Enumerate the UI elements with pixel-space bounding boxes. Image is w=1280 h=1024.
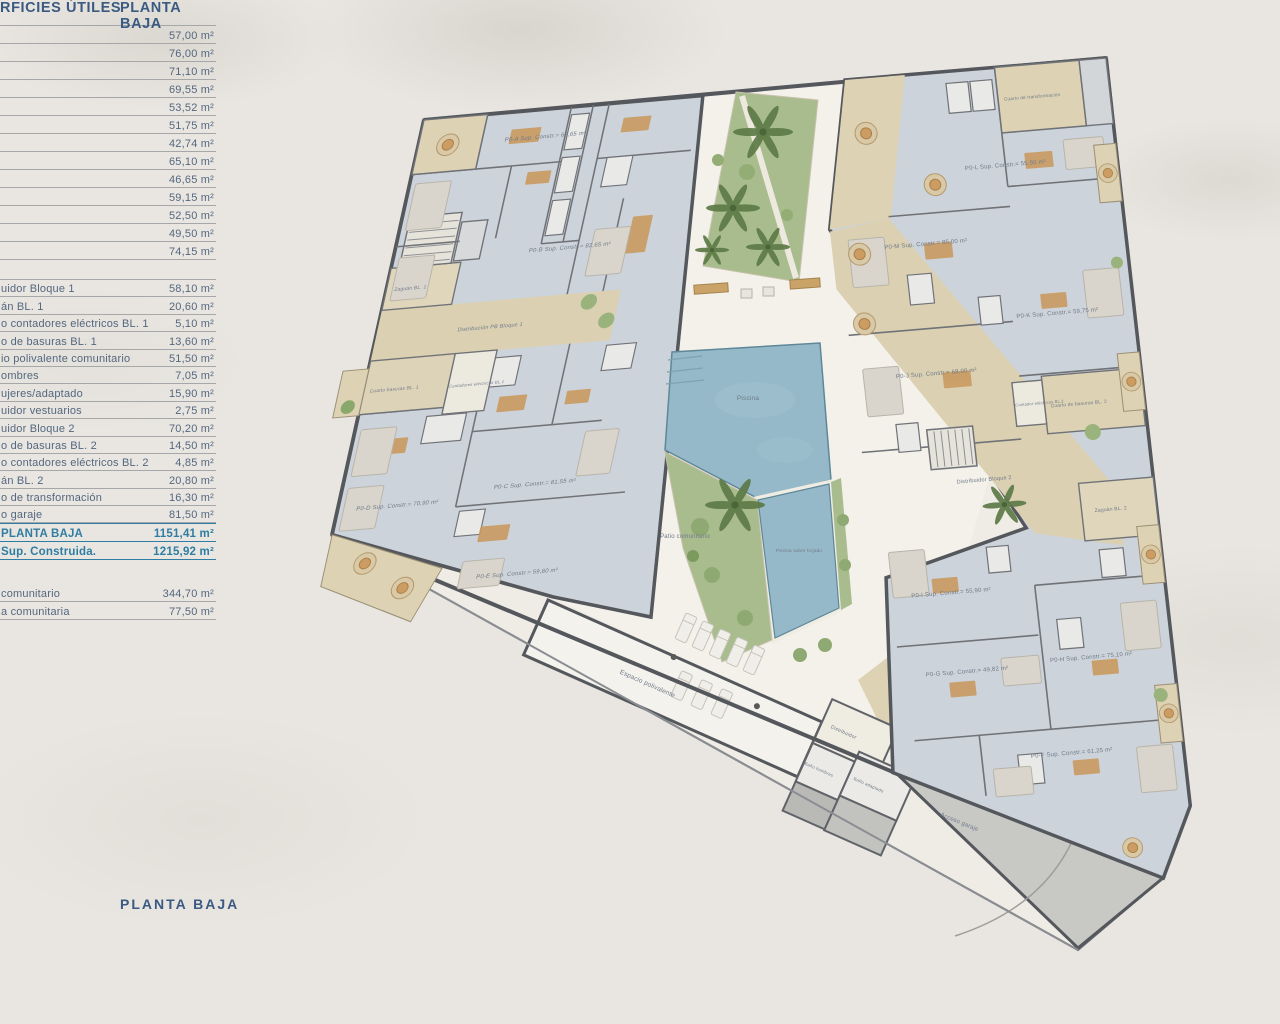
table-row: 65,10 m² — [0, 152, 216, 170]
row-value: 46,65 m² — [169, 174, 214, 186]
row-value: 71,10 m² — [169, 66, 214, 78]
row-label: o de transformación — [1, 492, 102, 504]
row-value: 51,50 m² — [169, 353, 214, 365]
row-value: 65,10 m² — [169, 156, 214, 168]
row-label: uidor Bloque 1 — [1, 283, 75, 295]
piscina-sobre-forjado-label: Piscina sobre forjado — [776, 548, 823, 553]
row-value: 1151,41 m² — [154, 528, 214, 540]
table-row: án BL. 220,80 m² — [0, 471, 216, 488]
row-value: 344,70 m² — [163, 588, 214, 600]
row-label: io polivalente comunitario — [1, 353, 130, 365]
table-row: 49,50 m² — [0, 224, 216, 242]
row-label: o garaje — [1, 509, 42, 521]
row-value: 15,90 m² — [169, 388, 214, 400]
row-value: 77,50 m² — [169, 606, 214, 618]
plan-sheet: RFICIES ÚTILES PLANTA BAJA 57,00 m² 76,0… — [0, 0, 1280, 1024]
row-value: 13,60 m² — [169, 336, 214, 348]
row-label: án BL. 2 — [1, 475, 44, 487]
row-label: a comunitaria — [1, 606, 70, 618]
row-label: uidor Bloque 2 — [1, 423, 75, 435]
row-value: 5,10 m² — [175, 318, 214, 330]
surfaces-table: RFICIES ÚTILES PLANTA BAJA 57,00 m² 76,0… — [0, 0, 216, 620]
table-row: ujeres/adaptado15,90 m² — [0, 384, 216, 401]
totals-section: PLANTA BAJA1151,41 m² Sup. Construida.12… — [0, 523, 216, 560]
table-row: o de basuras BL. 113,60 m² — [0, 332, 216, 349]
row-value: 20,80 m² — [169, 475, 214, 487]
row-label: o contadores eléctricos BL. 2 — [1, 457, 149, 469]
table-row: 42,74 m² — [0, 134, 216, 152]
table-row: ombres7,05 m² — [0, 367, 216, 384]
community-areas-section: comunitario344,70 m² a comunitaria77,50 … — [0, 584, 216, 620]
table-row: 53,52 m² — [0, 98, 216, 116]
row-label: comunitario — [1, 588, 60, 600]
table-row: comunitario344,70 m² — [0, 584, 216, 602]
table-row: 74,15 m² — [0, 242, 216, 260]
row-value: 52,50 m² — [169, 210, 214, 222]
row-value: 16,30 m² — [169, 492, 214, 504]
row-label: Sup. Construida. — [1, 546, 96, 558]
piscina-label: Piscina — [737, 395, 760, 402]
table-row: o contadores eléctricos BL. 24,85 m² — [0, 454, 216, 471]
row-value: 51,75 m² — [169, 120, 214, 132]
row-value: 76,00 m² — [169, 48, 214, 60]
floor-title: PLANTA BAJA — [120, 896, 239, 912]
row-label: ombres — [1, 370, 39, 382]
row-label: PLANTA BAJA — [1, 528, 83, 540]
row-label: o de basuras BL. 2 — [1, 440, 97, 452]
table-row: io polivalente comunitario51,50 m² — [0, 350, 216, 367]
total-row: PLANTA BAJA1151,41 m² — [0, 524, 216, 542]
row-value: 69,55 m² — [169, 84, 214, 96]
row-label: uidor vestuarios — [1, 405, 82, 417]
row-label: o contadores eléctricos BL. 1 — [1, 318, 149, 330]
table-row: o contadores eléctricos BL. 15,10 m² — [0, 315, 216, 332]
table-row: 76,00 m² — [0, 44, 216, 62]
table-row: uidor vestuarios2,75 m² — [0, 402, 216, 419]
row-value: 4,85 m² — [175, 457, 214, 469]
row-value: 70,20 m² — [169, 423, 214, 435]
table-row: o de basuras BL. 214,50 m² — [0, 437, 216, 454]
table-column-header: PLANTA BAJA — [120, 0, 216, 32]
row-value: 81,50 m² — [169, 509, 214, 521]
table-row: uidor Bloque 158,10 m² — [0, 280, 216, 297]
apartment-areas-section: 57,00 m² 76,00 m² 71,10 m² 69,55 m² 53,5… — [0, 25, 216, 260]
row-value: 2,75 m² — [175, 405, 214, 417]
table-header: RFICIES ÚTILES PLANTA BAJA — [0, 0, 216, 25]
row-value: 53,52 m² — [169, 102, 214, 114]
table-row: o de transformación16,30 m² — [0, 489, 216, 506]
row-label: án BL. 1 — [1, 301, 44, 313]
table-row: 69,55 m² — [0, 80, 216, 98]
row-value: 1215,92 m² — [153, 546, 214, 558]
row-value: 59,15 m² — [169, 192, 214, 204]
row-value: 49,50 m² — [169, 228, 214, 240]
table-row: án BL. 120,60 m² — [0, 297, 216, 314]
table-row: 46,65 m² — [0, 170, 216, 188]
table-title-fragment: RFICIES ÚTILES — [0, 0, 121, 16]
table-row: a comunitaria77,50 m² — [0, 602, 216, 620]
table-row: o garaje81,50 m² — [0, 506, 216, 523]
row-value: 20,60 m² — [169, 301, 214, 313]
table-row: uidor Bloque 270,20 m² — [0, 419, 216, 436]
patio-comunitario-label: Patio comunitario — [660, 534, 710, 540]
table-row: 59,15 m² — [0, 188, 216, 206]
total-row: Sup. Construida.1215,92 m² — [0, 542, 216, 560]
row-value: 58,10 m² — [169, 283, 214, 295]
table-row: 52,50 m² — [0, 206, 216, 224]
row-label: ujeres/adaptado — [1, 388, 83, 400]
table-row: 51,75 m² — [0, 116, 216, 134]
common-areas-section: uidor Bloque 158,10 m² án BL. 120,60 m² … — [0, 279, 216, 523]
row-value: 42,74 m² — [169, 138, 214, 150]
row-label: o de basuras BL. 1 — [1, 336, 97, 348]
table-row: 71,10 m² — [0, 62, 216, 80]
row-value: 14,50 m² — [169, 440, 214, 452]
row-value: 74,15 m² — [169, 246, 214, 258]
row-value: 7,05 m² — [175, 370, 214, 382]
